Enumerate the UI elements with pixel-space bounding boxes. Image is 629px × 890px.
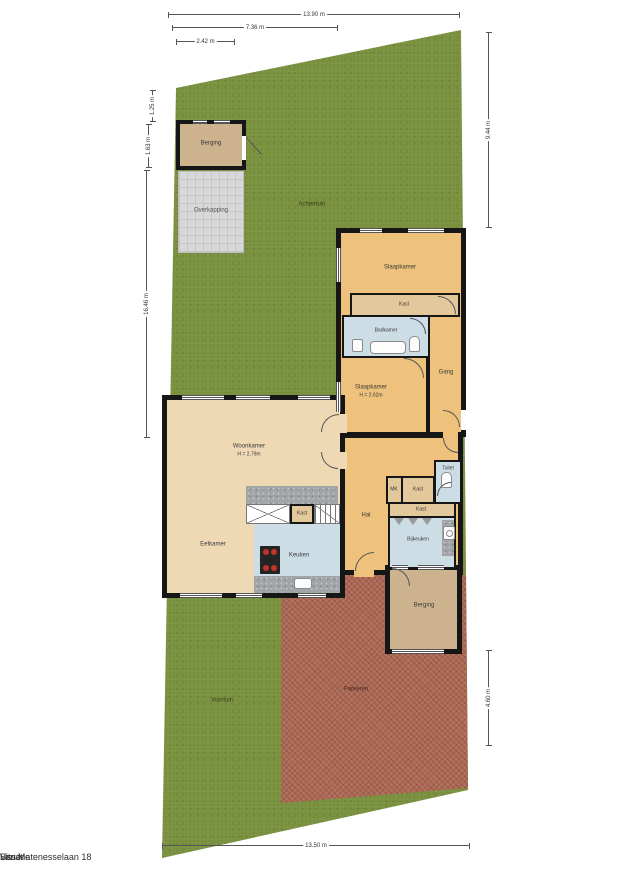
window-icon xyxy=(236,395,270,400)
label-overkapping: Overkapping xyxy=(194,208,228,215)
stairs xyxy=(314,504,340,524)
dim-right-bottom-label: 4.60 m xyxy=(486,687,492,709)
dim-right-bottom: 4.60 m xyxy=(488,650,489,746)
dim-top-total: 13.90 m xyxy=(168,14,460,15)
bathroom-toilet-icon xyxy=(409,336,420,352)
window-icon xyxy=(418,565,444,570)
dim-top-mid: 7.36 m xyxy=(172,27,338,28)
folding-door-icon xyxy=(394,518,404,525)
dim-top-small-label: 2.42 m xyxy=(194,39,216,45)
label-slaapkamer-2-height: H = 2.62m xyxy=(359,393,382,400)
label-shed-berging: Berging xyxy=(201,141,222,148)
label-gang: Gang xyxy=(439,370,454,377)
dim-bottom-total-label: 13.50 m xyxy=(303,843,329,849)
shed-door-opening xyxy=(242,136,246,160)
dim-left-mid: 1.63 m xyxy=(148,124,149,168)
label-toilet: Toilet xyxy=(442,466,454,473)
label-parkeren: Parkeren xyxy=(344,687,368,694)
floorplan-canvas: Achtertuin Voortuin Parkeren Overkapping… xyxy=(0,0,629,890)
washing-machine-icon xyxy=(443,526,455,540)
dim-left-total: 16.46 m xyxy=(146,170,147,438)
shed-window-icon xyxy=(214,120,230,124)
kitchen-sink-icon xyxy=(294,578,312,589)
kitchen-counter xyxy=(246,486,338,504)
window-icon xyxy=(236,593,262,598)
label-slaapkamer-2: Slaapkamer xyxy=(355,385,387,392)
label-kast-3: Kast xyxy=(413,487,423,494)
dim-right-top-label: 9.44 m xyxy=(486,119,492,141)
label-woonkamer: Woonkamer xyxy=(233,444,265,451)
title-city: Lisse xyxy=(0,852,21,862)
void-hatch xyxy=(246,504,290,524)
label-badkamer: Badkamer xyxy=(375,328,398,335)
dim-top-mid-label: 7.36 m xyxy=(244,25,266,31)
label-eetkamer: Eetkamer xyxy=(200,542,226,549)
label-kast-1: Kast xyxy=(399,302,409,309)
window-icon xyxy=(336,382,341,412)
label-achtertuin: Achtertuin xyxy=(298,202,325,209)
label-hal: Hal xyxy=(361,513,370,520)
window-icon xyxy=(180,593,222,598)
dim-left-top-label: 1.25 m xyxy=(150,95,156,117)
label-slaapkamer-1: Slaapkamer xyxy=(384,265,416,272)
label-voortuin: Voortuin xyxy=(211,698,233,705)
window-icon xyxy=(298,593,326,598)
dim-left-total-label: 16.46 m xyxy=(144,291,150,317)
label-kast-4: Kast xyxy=(416,507,426,514)
dim-bottom-total: 13.50 m xyxy=(162,845,470,846)
label-bijkeuken: Bijkeuken xyxy=(407,537,429,544)
door-opening xyxy=(338,452,347,469)
dim-left-mid-label: 1.63 m xyxy=(146,135,152,157)
window-icon xyxy=(392,649,444,654)
label-kast-2: Kast xyxy=(297,511,307,518)
label-mk: MK xyxy=(390,487,398,494)
bathtub-icon xyxy=(370,341,406,354)
window-icon xyxy=(182,395,224,400)
dim-right-top: 9.44 m xyxy=(488,32,489,228)
gang-door-opening xyxy=(461,410,466,430)
bathroom-sink-icon xyxy=(352,339,363,352)
stove-icon xyxy=(260,546,280,574)
window-icon xyxy=(408,228,444,233)
window-icon xyxy=(336,248,341,282)
dim-top-small: 2.42 m xyxy=(176,41,235,42)
dim-top-total-label: 13.90 m xyxy=(301,12,327,18)
shed-window-icon xyxy=(193,120,207,124)
label-woonkamer-height: H = 2.79m xyxy=(237,452,260,459)
front-door-opening xyxy=(354,570,374,577)
window-icon xyxy=(298,395,330,400)
door-opening xyxy=(338,414,347,433)
folding-door-icon xyxy=(408,518,418,525)
window-icon xyxy=(360,228,382,233)
dim-left-top: 1.25 m xyxy=(152,90,153,122)
bedroom2-gang-wall xyxy=(426,356,430,435)
folding-door-icon xyxy=(422,518,432,525)
label-berging: Berging xyxy=(414,603,435,610)
label-keuken: Keuken xyxy=(289,553,309,560)
